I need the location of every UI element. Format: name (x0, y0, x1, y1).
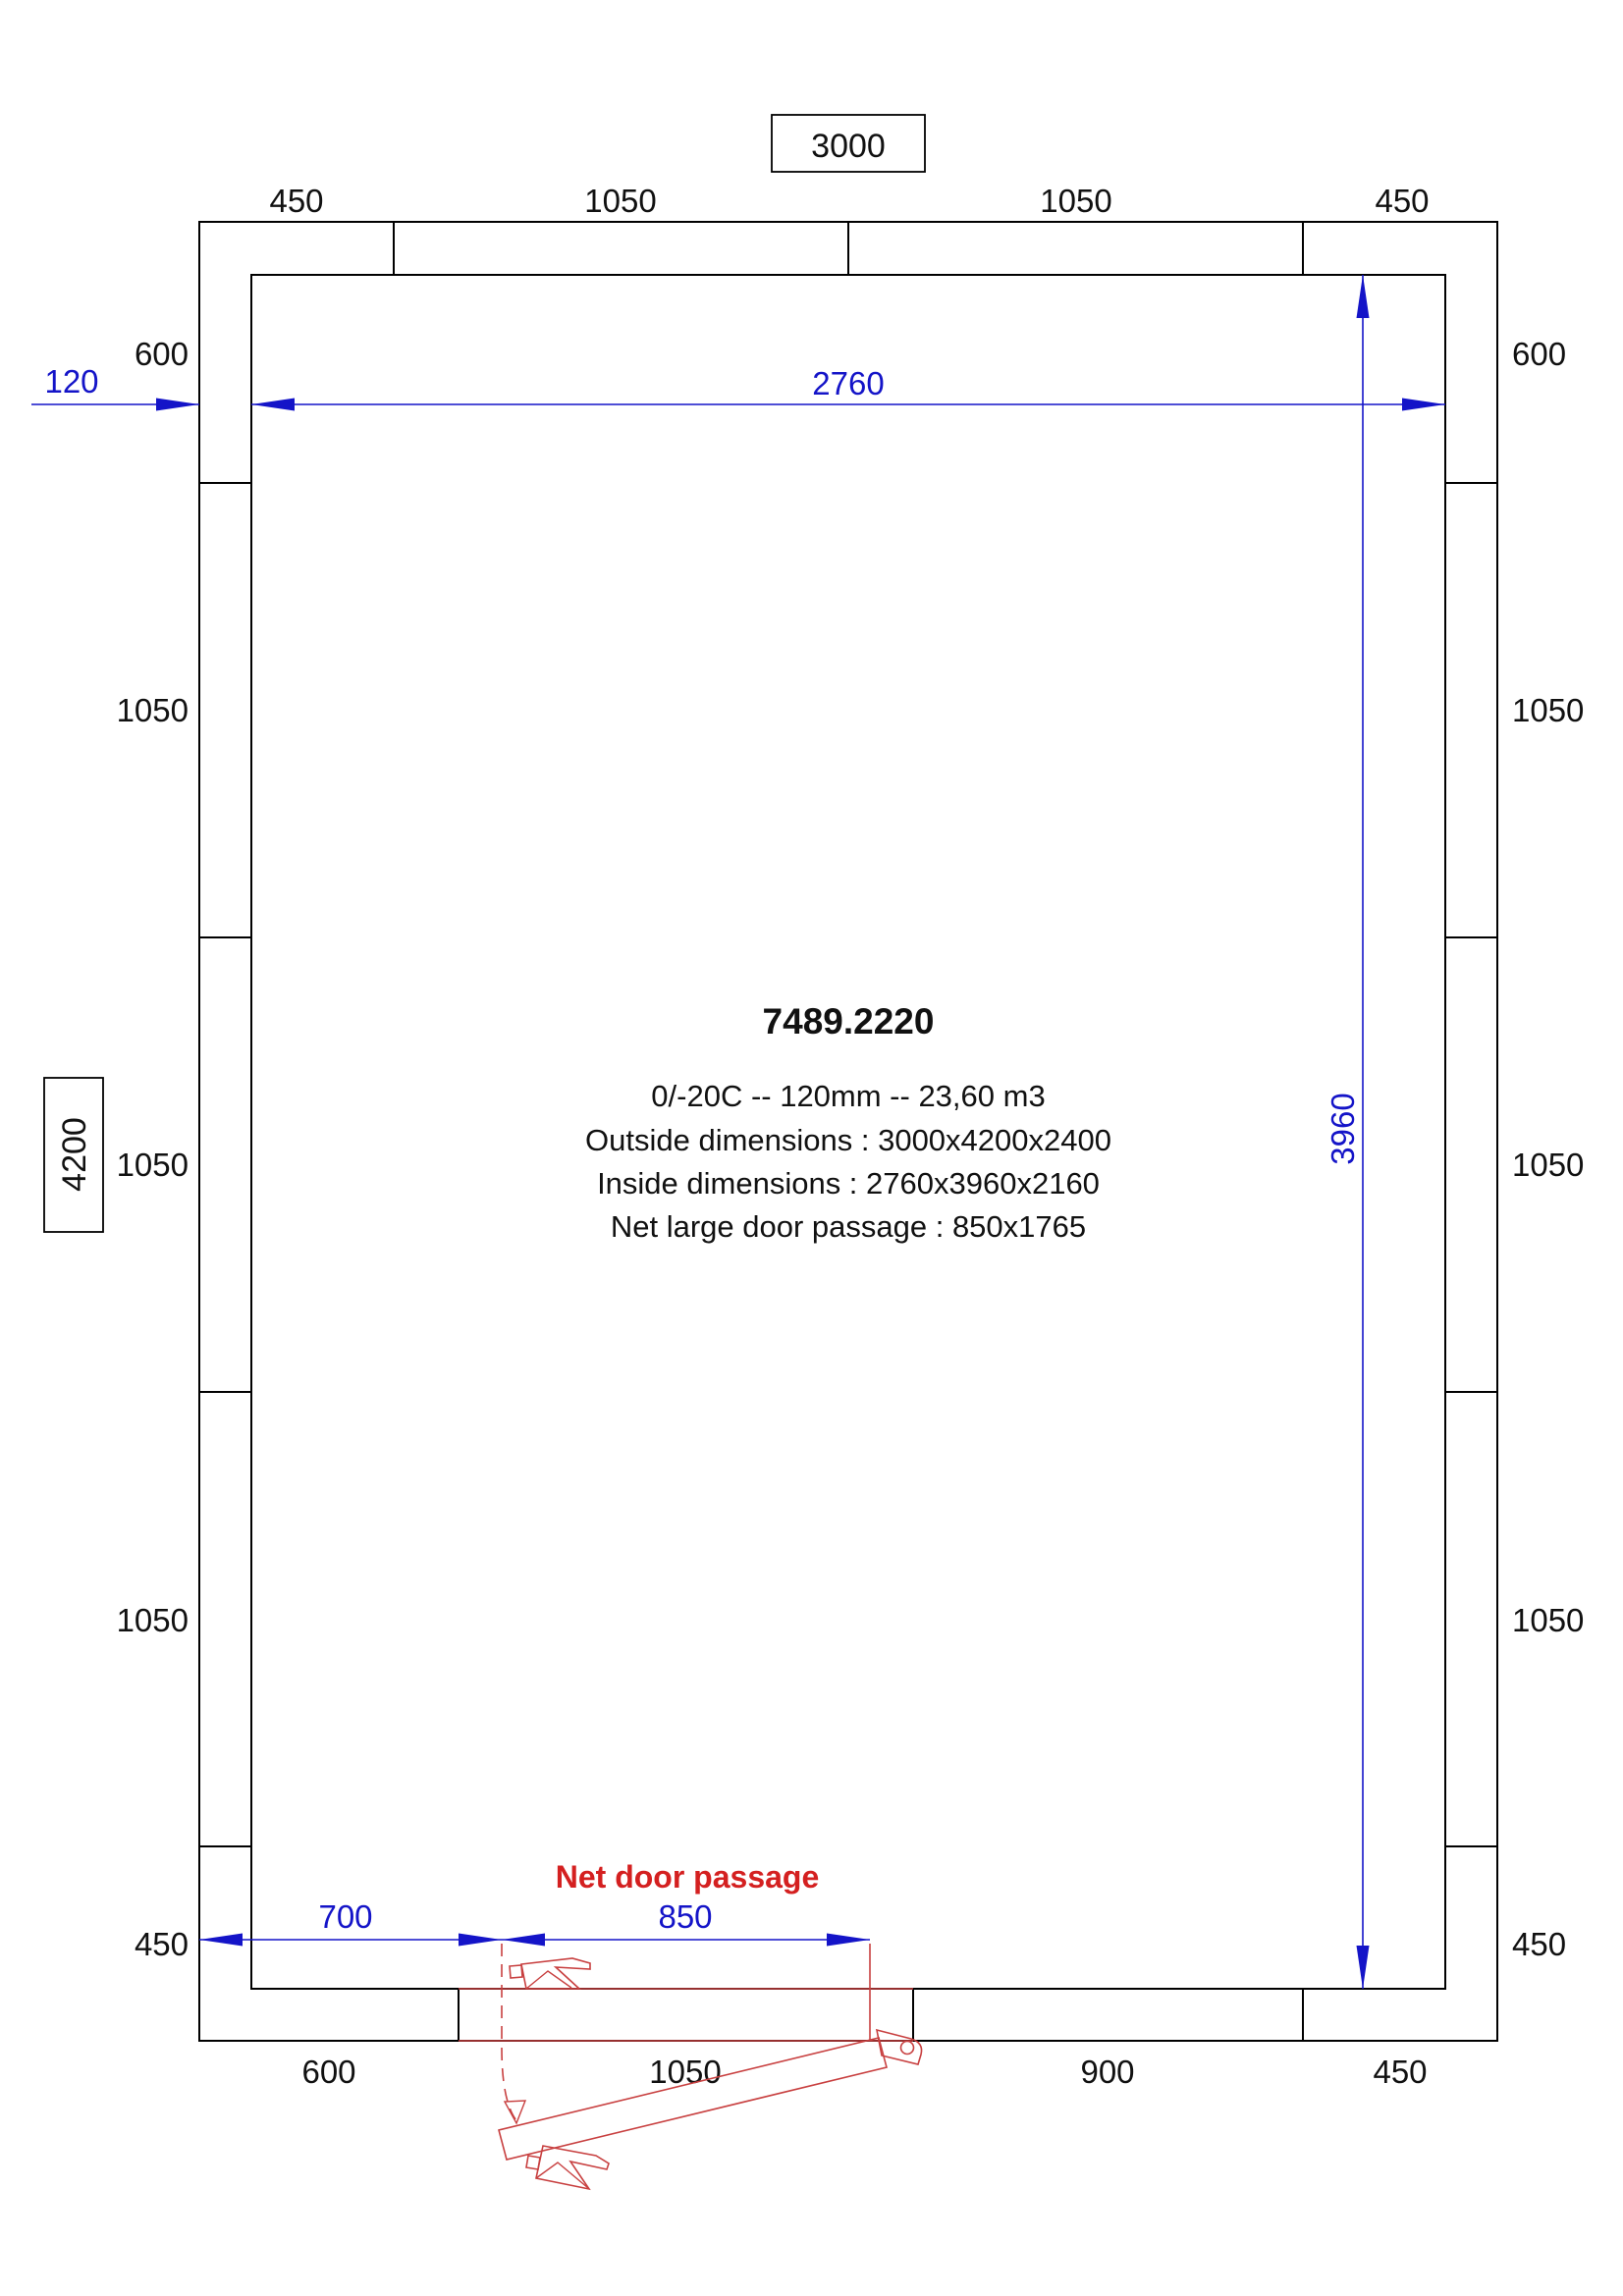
panel-label-top-0: 450 (269, 183, 323, 219)
wall-thickness-arrow-icon (156, 399, 199, 411)
panel-label-left-4: 450 (135, 1926, 189, 1962)
door-hinge-plate (877, 2030, 922, 2064)
overall-dimension-boxes: 3000 4200 (44, 115, 925, 1232)
panel-label-left-1: 1050 (117, 692, 189, 728)
overall-height-label: 4200 (56, 1117, 93, 1192)
door-hinge-pin-icon (901, 2042, 914, 2055)
outside-dimensions-line: Outside dimensions : 3000x4200x2400 (585, 1123, 1111, 1157)
door-swing-arrow-icon (505, 2101, 525, 2123)
cold-room-plan-drawing: 3000 4200 450 1050 1050 450 600 1050 900… (0, 0, 1623, 2296)
inner-height-label: 3960 (1325, 1093, 1361, 1164)
panel-label-bottom-3: 450 (1373, 2054, 1427, 2090)
panel-label-right-2: 1050 (1512, 1147, 1584, 1183)
door-passage-label: 850 (658, 1898, 712, 1935)
panel-label-right-3: 1050 (1512, 1602, 1584, 1638)
panel-label-top-2: 1050 (1040, 183, 1111, 219)
panel-label-top-3: 450 (1375, 183, 1429, 219)
inner-width-right-arrow-icon (1402, 399, 1445, 411)
drawing-reference: 7489.2220 (763, 1001, 935, 1041)
panel-label-right-4: 450 (1512, 1926, 1566, 1962)
inner-height-top-arrow-icon (1357, 275, 1370, 318)
panel-label-left-0: 600 (135, 336, 189, 372)
panel-label-top-1: 1050 (584, 183, 656, 219)
door-offset-right-arrow-icon (459, 1934, 502, 1947)
panel-label-bottom-2: 900 (1080, 2054, 1134, 2090)
panel-label-left-2: 1050 (117, 1147, 189, 1183)
door-passage-caption: Net door passage (556, 1859, 820, 1895)
door-handle-closed-detail (526, 1971, 571, 1989)
panel-label-right-1: 1050 (1512, 692, 1584, 728)
cold-room-plan-page: 3000 4200 450 1050 1050 450 600 1050 900… (0, 0, 1623, 2296)
door-passage-left-arrow-icon (502, 1934, 545, 1947)
net-large-door-passage-line: Net large door passage : 850x1765 (611, 1209, 1086, 1244)
door-strike-plate (510, 1965, 522, 1978)
door-handle-open (536, 2146, 609, 2189)
inside-dimensions-line: Inside dimensions : 2760x3960x2160 (597, 1166, 1100, 1201)
spec-line: 0/-20C -- 120mm -- 23,60 m3 (651, 1079, 1045, 1113)
panel-label-right-0: 600 (1512, 336, 1566, 372)
door-offset-left-arrow-icon (199, 1934, 243, 1947)
panel-label-left-3: 1050 (117, 1602, 189, 1638)
door-passage-right-arrow-icon (827, 1934, 870, 1947)
wall-thickness-label: 120 (44, 363, 98, 400)
panel-label-bottom-0: 600 (301, 2054, 355, 2090)
inner-width-label: 2760 (812, 365, 884, 401)
inner-width-left-arrow-icon (251, 399, 295, 411)
overall-width-label: 3000 (811, 128, 886, 165)
door-offset-label: 700 (318, 1898, 372, 1935)
inner-height-bottom-arrow-icon (1357, 1946, 1370, 1989)
info-block: 7489.2220 0/-20C -- 120mm -- 23,60 m3 Ou… (585, 1001, 1111, 1244)
